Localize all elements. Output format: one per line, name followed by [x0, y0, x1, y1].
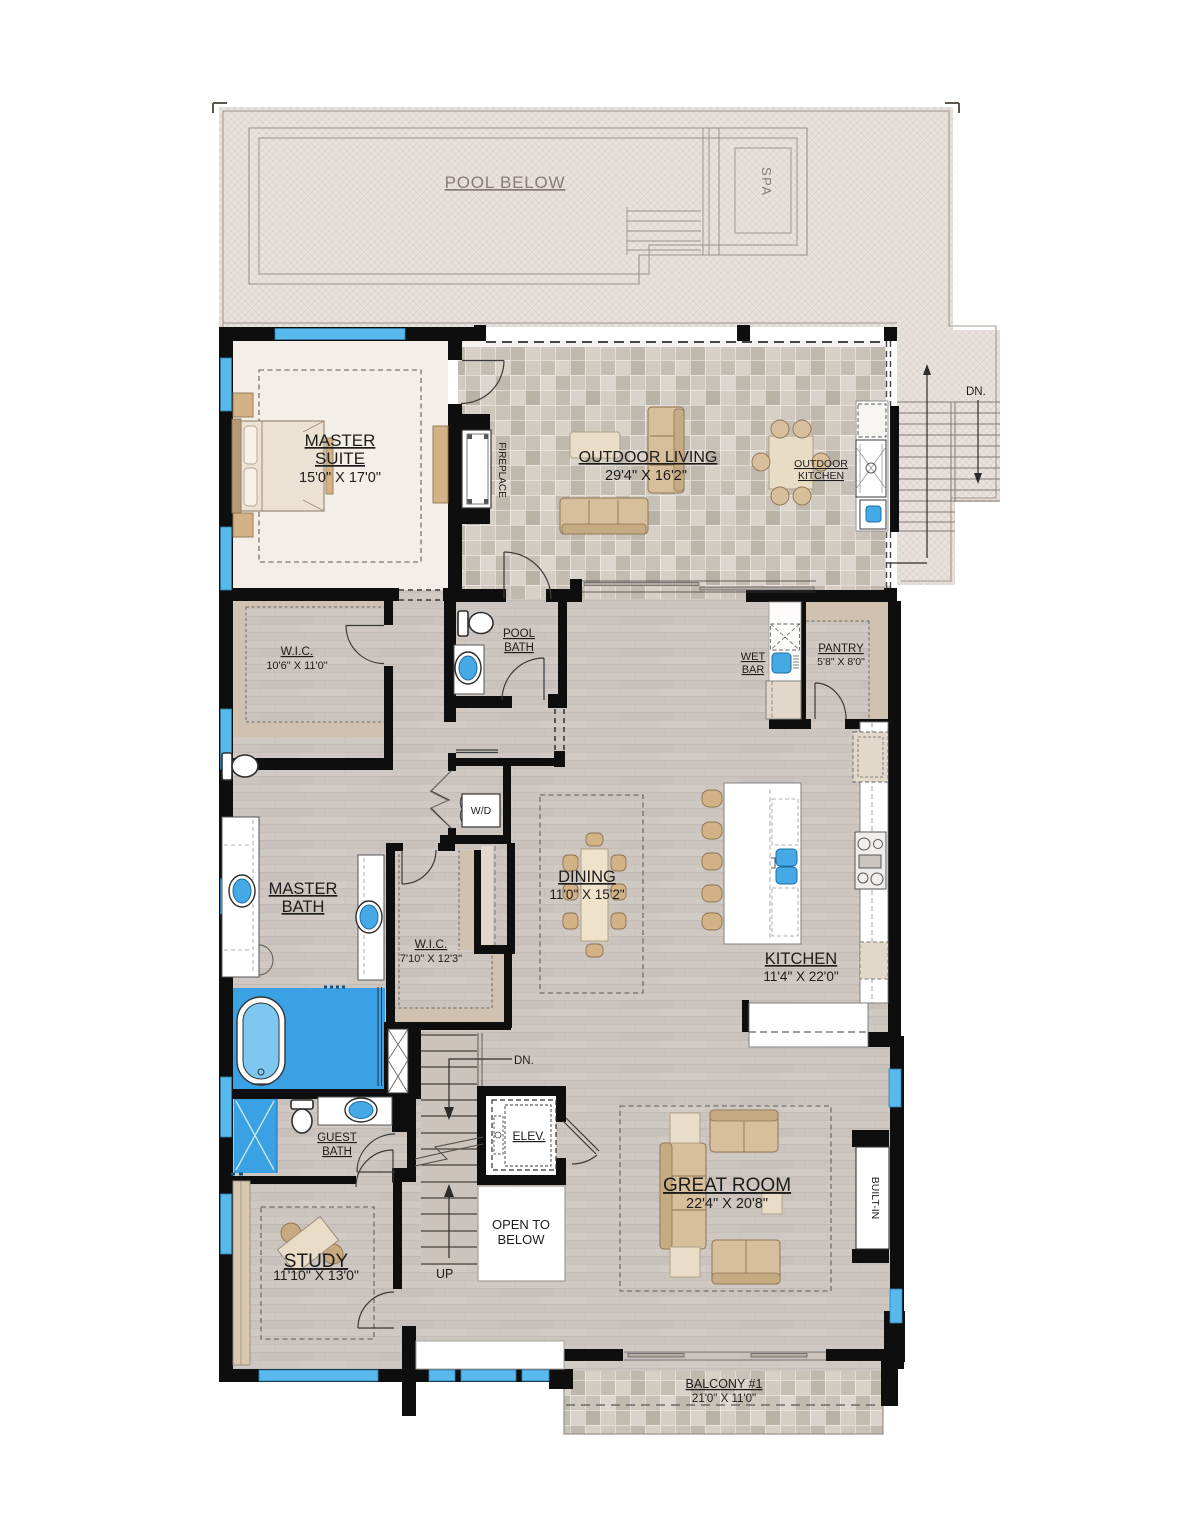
svg-text:11'0" X 15'2": 11'0" X 15'2": [549, 887, 624, 902]
svg-text:GREAT ROOM: GREAT ROOM: [663, 1175, 791, 1196]
svg-text:KITCHEN: KITCHEN: [765, 950, 837, 968]
svg-text:21'0" X 11'0": 21'0" X 11'0": [692, 1393, 756, 1405]
svg-text:BELOW: BELOW: [498, 1232, 546, 1247]
svg-text:DN.: DN.: [966, 386, 986, 398]
svg-text:PANTRY: PANTRY: [818, 643, 864, 655]
svg-text:BATH: BATH: [504, 642, 534, 654]
svg-text:7'10" X 12'3": 7'10" X 12'3": [400, 953, 462, 965]
svg-text:BATH: BATH: [322, 1146, 352, 1158]
svg-text:5'8" X 8'0": 5'8" X 8'0": [817, 656, 865, 668]
svg-text:FIREPLACE: FIREPLACE: [496, 442, 507, 498]
svg-text:POOL BELOW: POOL BELOW: [445, 173, 566, 192]
svg-text:OPEN TO: OPEN TO: [492, 1217, 550, 1232]
svg-text:ELEV.: ELEV.: [513, 1129, 546, 1143]
svg-text:BUILT-IN: BUILT-IN: [869, 1177, 881, 1219]
svg-text:BALCONY #1: BALCONY #1: [686, 1377, 763, 1391]
svg-text:MASTER: MASTER: [269, 880, 338, 898]
svg-text:BAR: BAR: [742, 664, 765, 676]
svg-text:OUTDOOR LIVING: OUTDOOR LIVING: [579, 449, 718, 466]
svg-text:KITCHEN: KITCHEN: [798, 470, 844, 482]
svg-text:W.I.C.: W.I.C.: [281, 644, 314, 658]
svg-text:15'0" X 17'0": 15'0" X 17'0": [299, 470, 381, 486]
svg-text:DINING: DINING: [558, 868, 616, 886]
svg-text:W.I.C.: W.I.C.: [415, 937, 448, 951]
svg-text:W/D: W/D: [471, 805, 492, 817]
svg-text:SUITE: SUITE: [315, 449, 365, 468]
svg-text:GUEST: GUEST: [317, 1132, 357, 1144]
svg-text:11'4" X 22'0": 11'4" X 22'0": [763, 969, 838, 984]
svg-text:MASTER: MASTER: [305, 431, 376, 450]
svg-text:UP: UP: [436, 1267, 453, 1281]
svg-text:OUTDOOR: OUTDOOR: [794, 458, 848, 470]
svg-text:29'4" X 16'2": 29'4" X 16'2": [605, 468, 687, 484]
svg-text:11'10" X 13'0": 11'10" X 13'0": [273, 1267, 359, 1283]
svg-text:DN.: DN.: [514, 1055, 534, 1067]
svg-text:10'6" X 11'0": 10'6" X 11'0": [266, 660, 327, 672]
svg-text:BATH: BATH: [282, 898, 325, 916]
svg-text:POOL: POOL: [503, 628, 536, 640]
svg-text:SPA: SPA: [759, 167, 774, 197]
svg-text:22'4" X 20'8": 22'4" X 20'8": [686, 1196, 768, 1212]
svg-text:WET: WET: [741, 651, 766, 663]
